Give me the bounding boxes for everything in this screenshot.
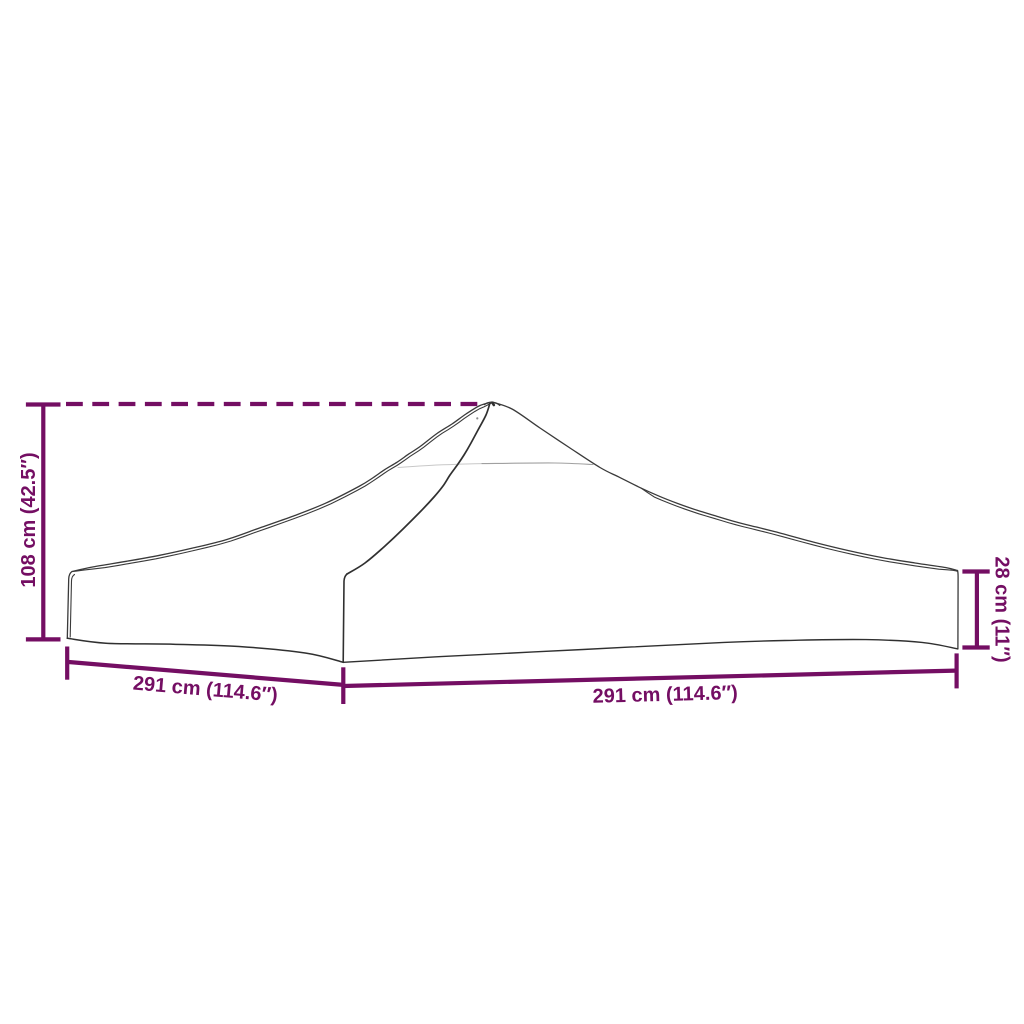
svg-text:28 cm (11″): 28 cm (11″): [990, 556, 1012, 662]
svg-text:108 cm (42.5″): 108 cm (42.5″): [18, 452, 40, 587]
svg-text:291 cm (114.6″): 291 cm (114.6″): [592, 682, 738, 708]
